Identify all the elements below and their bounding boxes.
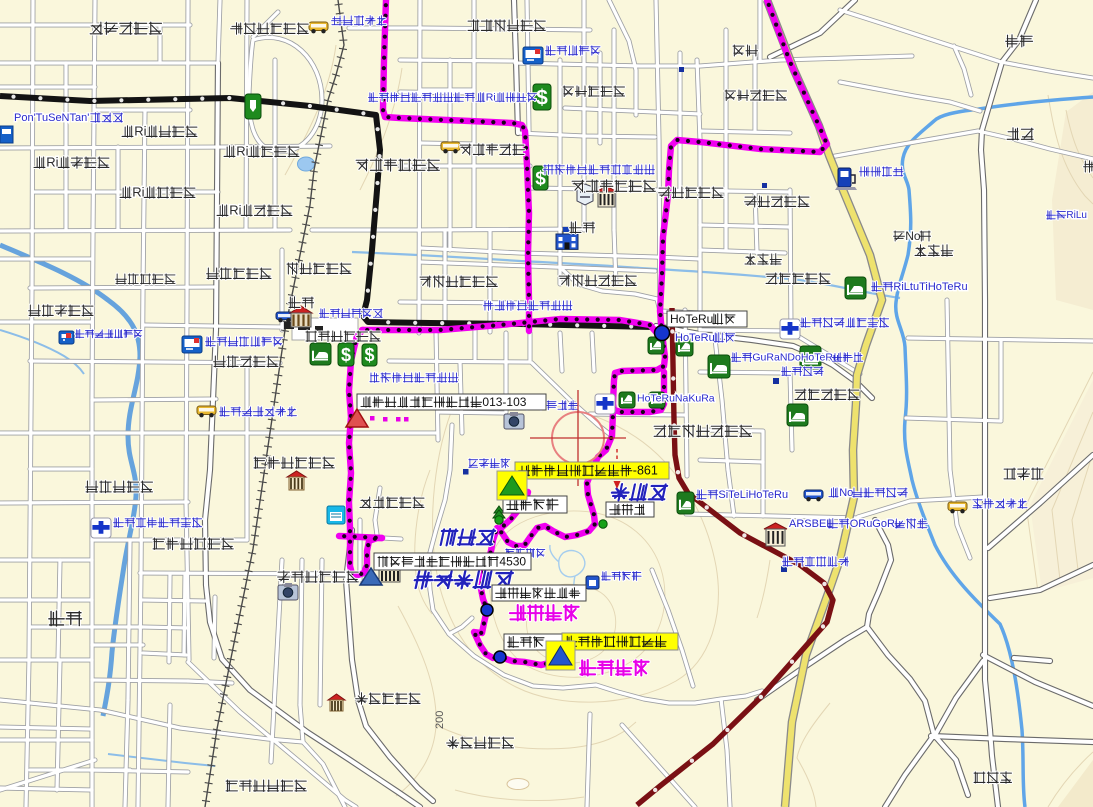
svg-text:Ri: Ri	[46, 155, 58, 170]
svg-text:$: $	[364, 345, 374, 365]
svg-text:RiLu: RiLu	[1066, 210, 1087, 221]
svg-text:No: No	[839, 487, 853, 499]
svg-text:$: $	[341, 345, 351, 365]
svg-text:4530: 4530	[499, 554, 526, 568]
svg-text:HoTeRu: HoTeRu	[670, 312, 713, 326]
svg-text:Ri: Ri	[486, 92, 496, 104]
svg-text:Ri: Ri	[132, 185, 144, 200]
svg-text:013-103: 013-103	[482, 395, 526, 409]
svg-text:RiLtuTiHoTeRu: RiLtuTiHoTeRu	[893, 281, 967, 293]
svg-text:-861: -861	[633, 464, 658, 478]
svg-text:ARSBEL: ARSBEL	[789, 518, 832, 530]
svg-text:Ri: Ri	[134, 124, 146, 139]
svg-text:Ri: Ri	[229, 203, 241, 218]
svg-text:200: 200	[434, 711, 446, 729]
svg-text:Pon'TuSeNTan': Pon'TuSeNTan'	[14, 112, 89, 124]
svg-text:Ri: Ri	[236, 144, 248, 159]
svg-text:ORuGoRu: ORuGoRu	[850, 518, 901, 530]
svg-text:GuRaNDoHoTeRu: GuRaNDoHoTeRu	[752, 352, 839, 364]
svg-text:$: $	[536, 86, 548, 109]
svg-text:HoTeRu: HoTeRu	[675, 332, 715, 344]
svg-text:SiTeLiHoTeRu: SiTeLiHoTeRu	[718, 489, 788, 501]
svg-text:HoTeRuNaKuRa: HoTeRuNaKuRa	[637, 393, 715, 405]
svg-text:No: No	[905, 229, 921, 243]
